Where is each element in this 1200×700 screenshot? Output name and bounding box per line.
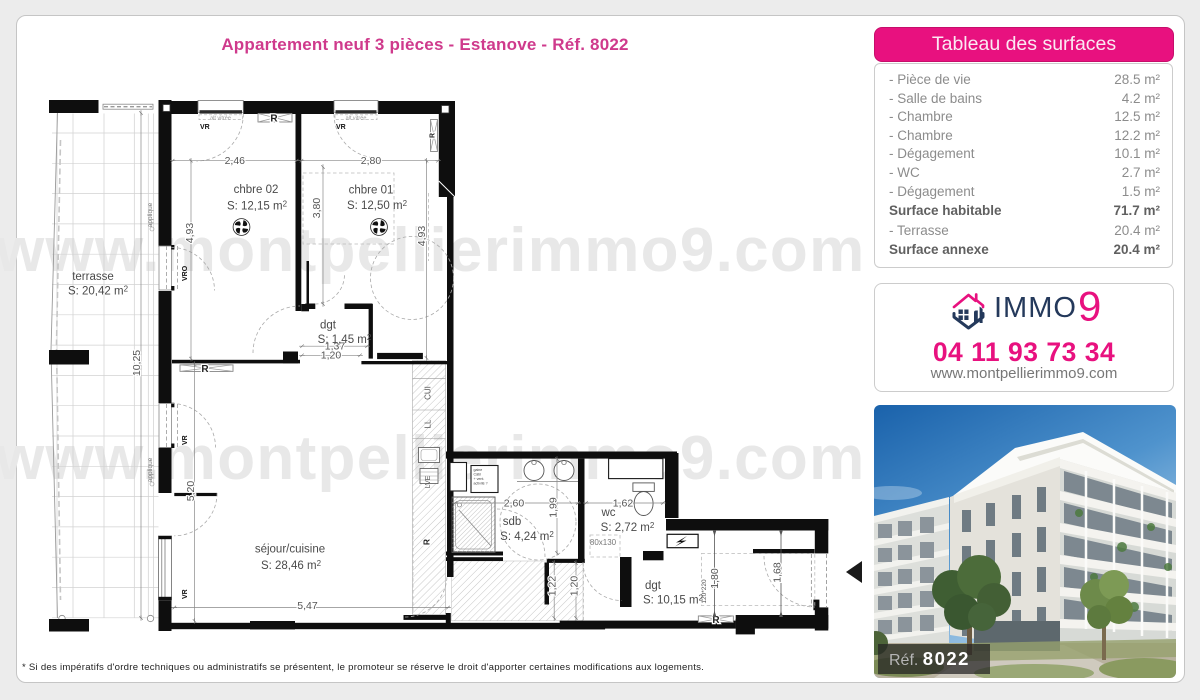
svg-text:1,80: 1,80	[709, 568, 721, 589]
svg-text:S: 12,50 m2: S: 12,50 m2	[347, 199, 408, 212]
svg-text:alt vitrée: alt vitrée	[210, 116, 231, 122]
svg-text:wc: wc	[600, 507, 615, 519]
svg-text:1,20: 1,20	[569, 576, 581, 597]
svg-text:LL: LL	[424, 419, 433, 428]
svg-text:séjour/cuisine: séjour/cuisine	[255, 544, 325, 556]
svg-text:S: 10,15 m2: S: 10,15 m2	[643, 594, 704, 607]
svg-text:terrasse: terrasse	[72, 271, 114, 283]
svg-text:1,68: 1,68	[771, 562, 783, 583]
svg-text:R: R	[270, 114, 278, 125]
svg-text:4,93: 4,93	[184, 223, 196, 244]
svg-text:sdb: sdb	[503, 516, 522, 528]
svg-text:2,46: 2,46	[225, 155, 246, 167]
svg-text:VR: VR	[336, 124, 346, 131]
svg-text:dgt: dgt	[320, 320, 337, 332]
svg-text:1,20: 1,20	[321, 350, 342, 362]
svg-text:1,99: 1,99	[548, 497, 560, 518]
svg-text:S: 2,72 m2: S: 2,72 m2	[601, 521, 655, 534]
svg-text:chbre 01: chbre 01	[349, 185, 394, 197]
svg-text:10,25: 10,25	[131, 350, 143, 376]
svg-text:R: R	[201, 364, 209, 375]
svg-text:applique: applique	[147, 202, 154, 227]
svg-text:+ vent.: + vent.	[474, 477, 485, 481]
svg-text:CUI: CUI	[424, 386, 433, 400]
svg-text:S: 4,24 m2: S: 4,24 m2	[500, 530, 554, 543]
svg-text:S: 20,42 m2: S: 20,42 m2	[68, 285, 129, 298]
svg-text:Câbl: Câbl	[474, 473, 482, 477]
svg-text:gaine: gaine	[474, 468, 483, 472]
svg-text:1,62: 1,62	[613, 498, 634, 510]
svg-text:3,80: 3,80	[311, 198, 323, 219]
svg-text:VR: VR	[182, 589, 189, 599]
svg-text:LVE: LVE	[425, 475, 432, 488]
svg-text:R: R	[712, 615, 720, 626]
svg-text:5,47: 5,47	[297, 600, 318, 612]
svg-text:S: 1,45 m2: S: 1,45 m2	[318, 333, 372, 346]
svg-text:activité ?: activité ?	[474, 482, 488, 486]
svg-text:S: 28,46 m2: S: 28,46 m2	[261, 559, 322, 572]
svg-text:VR: VR	[182, 435, 189, 445]
svg-text:alt vitrée: alt vitrée	[346, 116, 367, 122]
svg-text:2,60: 2,60	[504, 498, 525, 510]
svg-text:80x130: 80x130	[590, 538, 617, 547]
svg-text:5,20: 5,20	[185, 481, 197, 502]
svg-text:R: R	[430, 133, 437, 138]
svg-text:2,80: 2,80	[361, 155, 382, 167]
svg-text:R: R	[422, 539, 432, 545]
svg-text:applique: applique	[147, 457, 154, 482]
svg-text:VR: VR	[200, 124, 210, 131]
svg-text:VRO: VRO	[182, 265, 189, 281]
svg-text:chbre 02: chbre 02	[234, 184, 279, 196]
svg-text:4,93: 4,93	[416, 226, 428, 247]
svg-text:S: 12,15 m2: S: 12,15 m2	[227, 200, 288, 213]
svg-text:1,22: 1,22	[547, 576, 559, 597]
svg-text:dgt: dgt	[645, 580, 662, 592]
